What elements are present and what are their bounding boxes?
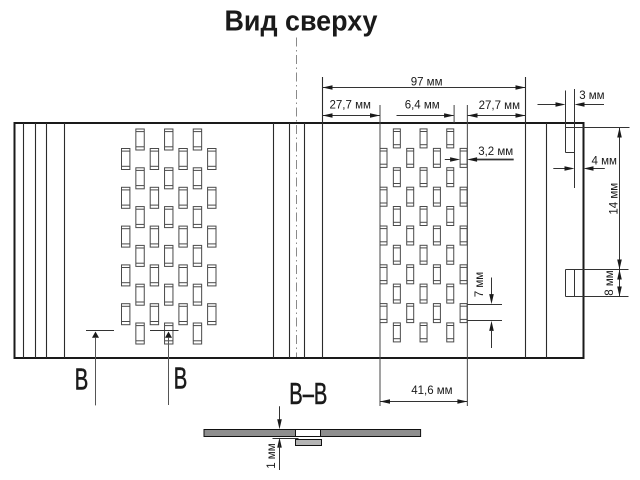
svg-text:В: В	[174, 362, 188, 396]
svg-text:В–В: В–В	[289, 377, 327, 411]
svg-text:97 мм: 97 мм	[411, 77, 443, 89]
svg-text:1 мм: 1 мм	[266, 443, 278, 468]
svg-text:4 мм: 4 мм	[591, 156, 616, 168]
svg-text:7 мм: 7 мм	[474, 272, 486, 297]
svg-text:8 мм: 8 мм	[604, 270, 616, 295]
svg-text:14 мм: 14 мм	[609, 183, 621, 215]
svg-text:27,7 мм: 27,7 мм	[479, 100, 520, 112]
svg-text:3,2 мм: 3,2 мм	[478, 146, 513, 158]
svg-text:27,7 мм: 27,7 мм	[330, 100, 371, 112]
svg-text:41,6 мм: 41,6 мм	[411, 385, 452, 397]
svg-text:Вид сверху: Вид сверху	[225, 6, 378, 38]
svg-text:В: В	[75, 363, 89, 397]
svg-text:6,4 мм: 6,4 мм	[405, 99, 440, 111]
svg-text:3 мм: 3 мм	[579, 90, 604, 102]
